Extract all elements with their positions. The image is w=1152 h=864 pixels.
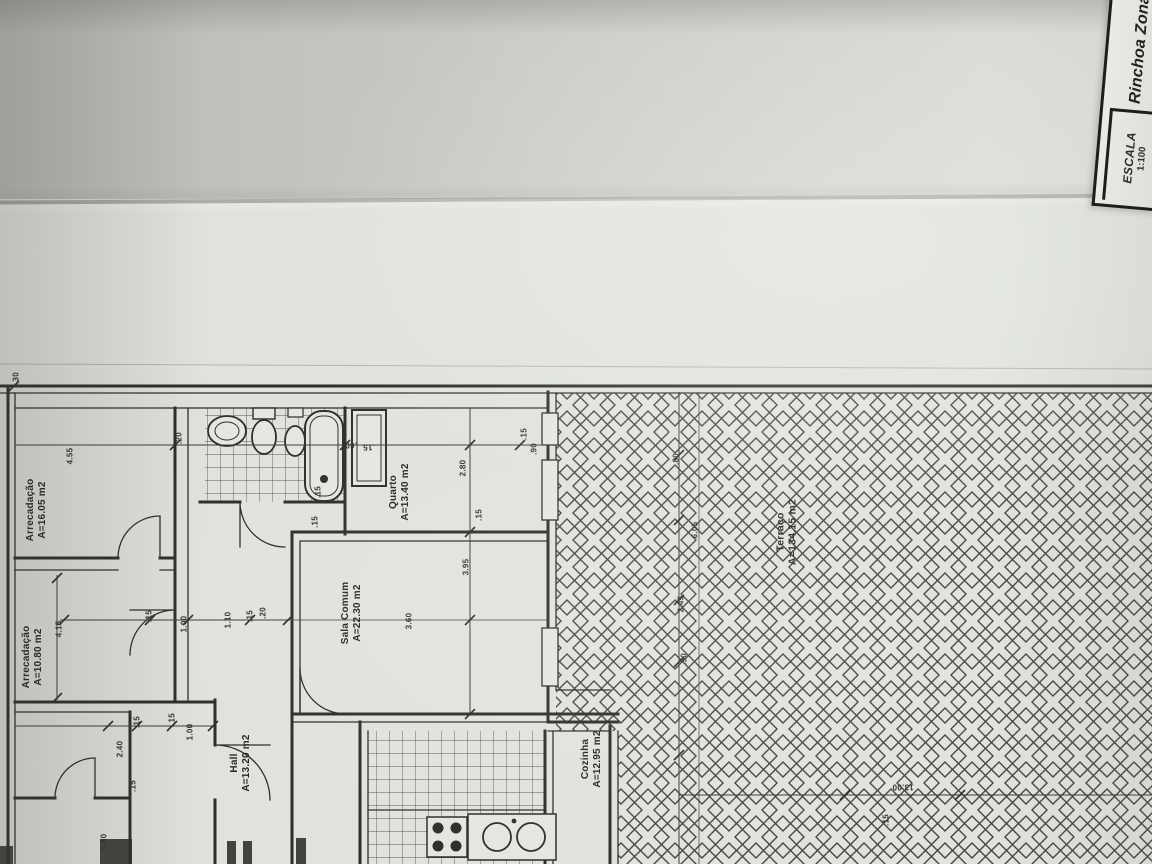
toilet-tank-icon xyxy=(253,408,275,419)
bidet-icon xyxy=(285,426,305,456)
door-swings xyxy=(55,502,346,800)
toilet-icon xyxy=(252,420,276,454)
stove-icon xyxy=(427,817,467,857)
scanned-floor-plan-photo: ArrecadaçãoA=16.05 m2ArrecadaçãoA=10.80 … xyxy=(0,0,1152,864)
title-block-scale-value: 1:100 xyxy=(1136,146,1149,171)
title-block-location-text: Rinchoa Zona xyxy=(1127,0,1152,105)
terrace-hatch-area xyxy=(556,393,1152,864)
title-block-scale-text: ESCALA 1:100 xyxy=(1121,131,1150,185)
title-block-location-cell: Rinchoa Zona xyxy=(1103,0,1152,113)
title-block-scale-cell: ESCALA 1:100 xyxy=(1102,108,1152,205)
dark-plan-elements xyxy=(0,838,306,864)
floor-plan-drawing xyxy=(0,0,1152,864)
